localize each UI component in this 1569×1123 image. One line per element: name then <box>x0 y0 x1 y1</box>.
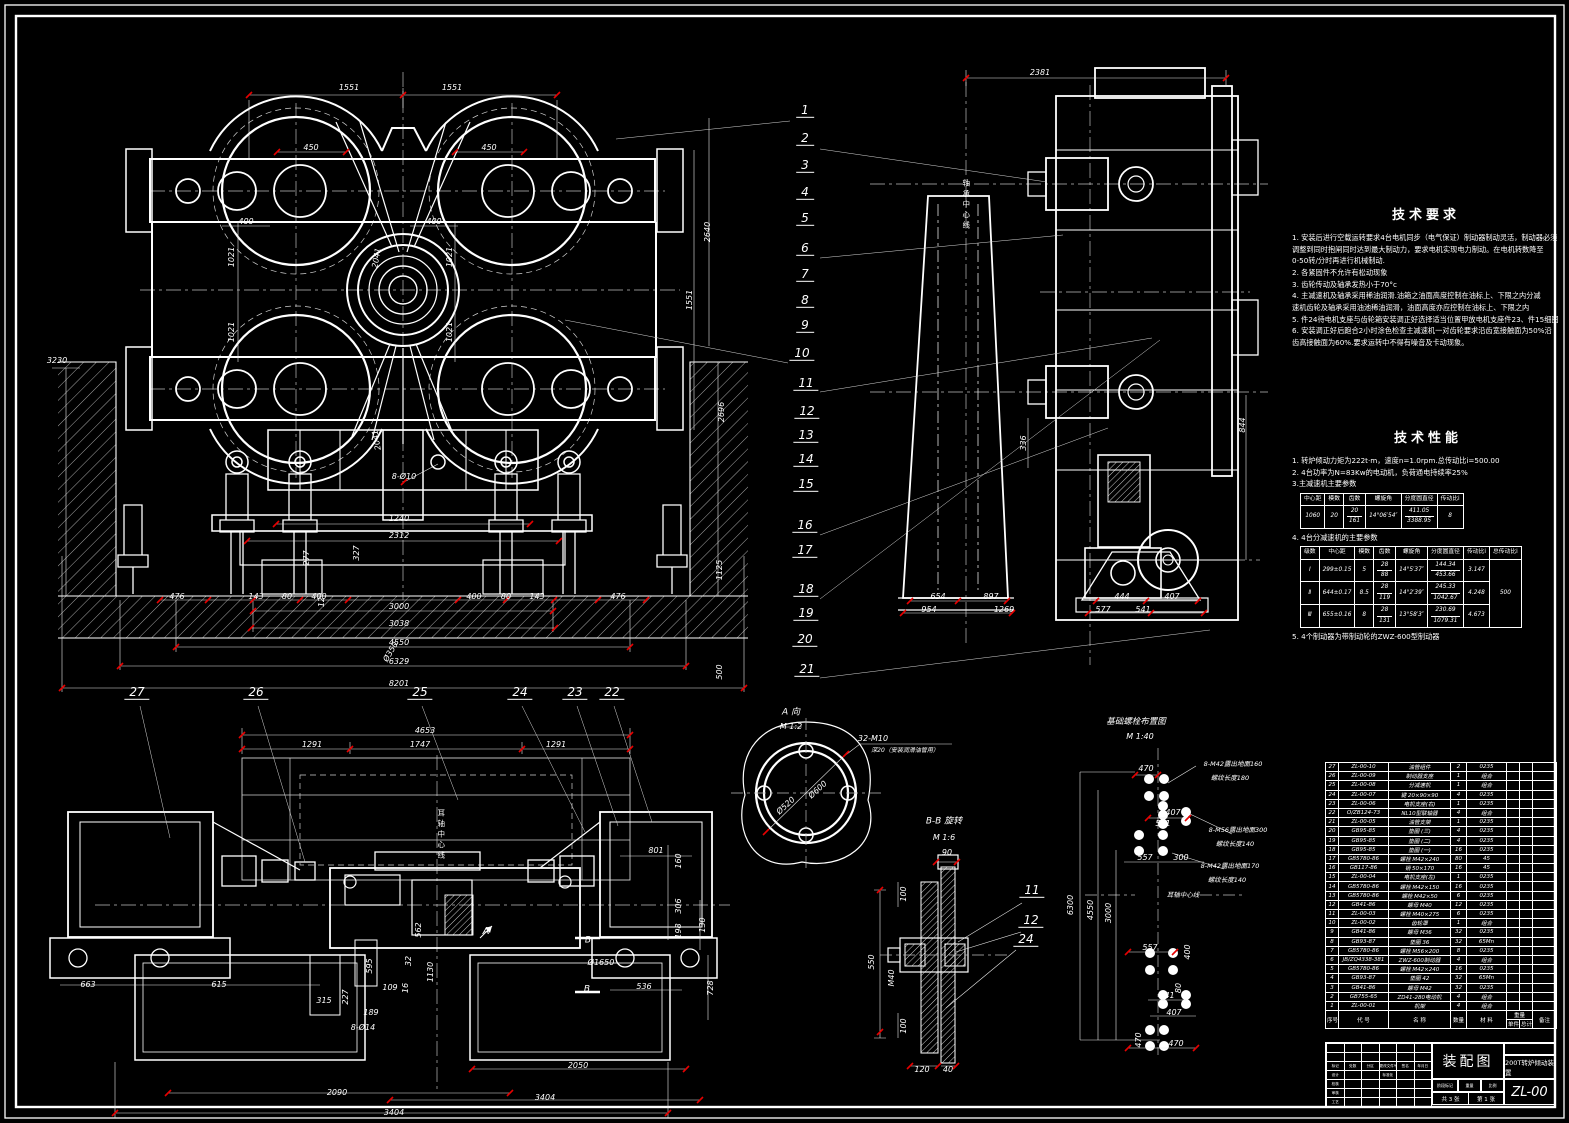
bom-row: 7GB5780-86螺栓 M56×20080235 <box>1326 946 1557 955</box>
t2-r0-center: 299±0.15 <box>1319 559 1355 582</box>
t2-r2-dia: 230.69 1079.31 <box>1427 605 1463 628</box>
rev-col-zone: 分区 <box>1362 1062 1380 1071</box>
t2-r2-teeth: 28 131 <box>1374 605 1396 628</box>
bom-header-row: 序号 代 号 名 称 数量 材 料 重量 备注 <box>1326 1011 1557 1020</box>
t2-r1-dia-bot: 1042.67 <box>1431 594 1460 603</box>
callout-main-5: 5 <box>796 212 814 226</box>
bom-row: 4GB93-87垫圈 423265Mn <box>1326 974 1557 983</box>
t2-h-ratio: 传动比i <box>1463 547 1489 559</box>
bom-row: 26ZL-00-09制动器支座1组合 <box>1326 772 1557 781</box>
t2-r1-ratio: 4.248 <box>1463 582 1489 605</box>
tech-performance: 技术性能 1. 转炉倾动力矩为222t·m，速度n=1.0rpm.总传动比i=5… <box>1292 428 1564 643</box>
t2-h-total: 总传动比i <box>1489 547 1521 559</box>
callout-plan-22: 22 <box>599 686 624 700</box>
note-line: 0-50转/分时再进行机械制动. <box>1292 255 1560 267</box>
stage-mark-label: 阶段标记 <box>1432 1079 1458 1092</box>
bom-row: 21ZL-00-05油管支架10235 <box>1326 818 1557 827</box>
callout-main-16: 16 <box>792 519 817 533</box>
callout-main-2: 2 <box>796 132 814 146</box>
callout-main-8: 8 <box>796 294 814 308</box>
tech-performance-title: 技术性能 <box>1292 428 1564 449</box>
bom-row: 1ZL-00-01机架4组合 <box>1326 1001 1557 1010</box>
bom-row: 13GB5780-86螺栓 M42×5060235 <box>1326 891 1557 900</box>
product-name: 200T转炉倾动装置 <box>1504 1055 1555 1079</box>
note-line: 3. 齿轮传动及轴承发热小于70°c <box>1292 279 1560 291</box>
bom-row: 2GB755-65ZD41-280电动机4组合 <box>1326 992 1557 1001</box>
t2-r0-teeth: 28 88 <box>1374 559 1396 582</box>
plan-view <box>50 728 730 1118</box>
t2-r0-dia-bot: 453.66 <box>1431 571 1460 580</box>
callout-main-1: 1 <box>796 104 814 118</box>
bom-row: 20GB95-85垫圈 (三)40235 <box>1326 827 1557 836</box>
t2-r1-stage: Ⅱ <box>1301 582 1320 605</box>
t1-h-center: 中心距 <box>1301 493 1325 505</box>
t2-r2-dia-top: 230.69 <box>1431 606 1460 616</box>
role-standardization: 标准化 <box>1379 1071 1397 1080</box>
t2-r2-dia-bot: 1079.31 <box>1431 617 1460 626</box>
bom-row: 5GB5780-86螺栓 M42×240160235 <box>1326 965 1557 974</box>
callout-main-7: 7 <box>796 268 814 282</box>
bom-h-weight: 重量 <box>1507 1011 1533 1020</box>
bom-h-code: 代 号 <box>1339 1011 1389 1029</box>
callout-main-20: 20 <box>792 633 817 647</box>
note-line: 5. 件24待电机支座与齿轮箱安装调正好选择适当位置甲放电机支座件23、件15细… <box>1292 314 1560 326</box>
callout-main-18: 18 <box>793 583 818 597</box>
t1-teeth: 20 161 <box>1344 505 1366 528</box>
callout-plan-23: 23 <box>562 686 587 700</box>
bb-section <box>874 855 1022 1066</box>
t1-h-dia: 分度圆直径 <box>1401 493 1437 505</box>
t1-h-teeth: 齿数 <box>1344 493 1366 505</box>
note-line: 速机齿轮及轴承采用油池稀油润滑，油面高度亦应控制在油标上、下限之内 <box>1292 302 1560 314</box>
title-block: 标记 处数 分区 更改文件号 签名 年月日 设计标准化 校核 审核 工艺 装配图… <box>1325 1042 1556 1107</box>
t2-r2-module: 8 <box>1355 605 1374 628</box>
rev-col-date: 年月日 <box>1414 1062 1432 1071</box>
sheet-count: 共 3 张 <box>1432 1092 1468 1105</box>
scale-label: 比例 <box>1481 1079 1504 1092</box>
parts-list: 27ZL-00-10油管组件2023526ZL-00-09制动器支座1组合25Z… <box>1325 762 1556 1029</box>
bom-h-qty: 数量 <box>1451 1011 1467 1029</box>
callout-bb-24: 24 <box>1013 933 1038 947</box>
bom-row: 23ZL-00-06电机支座(右)10235 <box>1326 799 1557 808</box>
t2-r0-dia-top: 144.34 <box>1431 561 1460 571</box>
t1-dia: 411.05 3388.95 <box>1401 505 1437 528</box>
t2-r0-teeth-top: 28 <box>1377 561 1392 571</box>
t1-h-angle: 螺旋角 <box>1366 493 1402 505</box>
bom-row: 8GB93-87垫圈 363265Mn <box>1326 937 1557 946</box>
bom-row: 19GB95-85垫圈 (二)40235 <box>1326 836 1557 845</box>
bom-h-total: 总计 <box>1520 1020 1533 1029</box>
callout-main-19: 19 <box>793 607 818 621</box>
t2-total-ratio: 500 <box>1489 559 1521 627</box>
t1-dia-top: 411.05 <box>1405 507 1434 517</box>
bom-row: 22O/ZB124-73NL10型联轴器4组合 <box>1326 808 1557 817</box>
callout-main-14: 14 <box>793 453 818 467</box>
t2-h-stage: 级数 <box>1301 547 1320 559</box>
callout-plan-26: 26 <box>243 686 268 700</box>
callout-main-3: 3 <box>796 159 814 173</box>
t1-teeth-bot: 161 <box>1347 517 1362 526</box>
t2-r0-ratio: 3.147 <box>1463 559 1489 582</box>
t2-r1-dia-top: 245.33 <box>1431 583 1460 593</box>
t2-r2-ratio: 4.673 <box>1463 605 1489 628</box>
bom-row: 24ZL-00-07键 20×90×9040235 <box>1326 790 1557 799</box>
t2-r1-dia: 245.33 1042.67 <box>1427 582 1463 605</box>
drawing-type-title: 装配图 <box>1432 1043 1504 1079</box>
t1-dia-bot: 3388.95 <box>1405 517 1434 526</box>
callout-main-9: 9 <box>796 319 814 333</box>
t1-h-ratio: 传动比i <box>1437 493 1463 505</box>
callout-main-10: 10 <box>789 347 814 361</box>
sheet-number: 第 1 张 <box>1468 1092 1504 1105</box>
cad-drawing-screenshot: { "sheet": { "title": "装配图", "product": … <box>0 0 1569 1123</box>
t1-ratio: 8 <box>1437 505 1463 528</box>
bom-row: 16GB117-86销 50×1701645 <box>1326 864 1557 873</box>
bom-row: 25ZL-00-08分减速机1组合 <box>1326 781 1557 790</box>
note-line: 6. 安装调正好后跑合2小时涂色检查主减速机一对齿轮要求沿齿宽接触面为50%沿 <box>1292 325 1560 337</box>
t1-angle: 14°06′54″ <box>1366 505 1402 528</box>
t1-module: 20 <box>1325 505 1344 528</box>
perf-line-1: 1. 转炉倾动力矩为222t·m，速度n=1.0rpm.总传动比i=500.00 <box>1292 455 1564 467</box>
t2-h-teeth: 齿数 <box>1374 547 1396 559</box>
callout-main-13: 13 <box>793 429 818 443</box>
t2-r1-teeth-bot: 119 <box>1377 594 1392 603</box>
t2-r2-center: 655±0.16 <box>1319 605 1355 628</box>
bom-row: 3GB41-86螺母 M42320235 <box>1326 983 1557 992</box>
drawing-code: ZL-00 <box>1504 1079 1555 1105</box>
callout-plan-24: 24 <box>507 686 532 700</box>
perf-line-4: 4. 4台分减速机的主要参数 <box>1292 532 1564 544</box>
t2-r0-module: 5 <box>1355 559 1374 582</box>
t2-r0-dia: 144.34 453.66 <box>1427 559 1463 582</box>
bom-row: 18GB95-85垫圈 (一)160235 <box>1326 845 1557 854</box>
t2-r2-stage: Ⅲ <box>1301 605 1320 628</box>
t2-h-angle: 螺旋角 <box>1396 547 1428 559</box>
t2-r1-teeth-top: 28 <box>1377 583 1392 593</box>
bom-row: 15ZL-00-04电机支座(左)10235 <box>1326 873 1557 882</box>
tech-requirements-title: 技术要求 <box>1292 205 1560 226</box>
a-view-detail <box>731 718 952 868</box>
bom-row: 9GB41-86螺母 M36320235 <box>1326 928 1557 937</box>
rev-col-count: 处数 <box>1344 1062 1362 1071</box>
bom-row: 12GB41-86螺母 M40120235 <box>1326 900 1557 909</box>
callout-bb-11: 11 <box>1019 884 1044 898</box>
t2-r1-teeth: 28 119 <box>1374 582 1396 605</box>
t2-h-center: 中心距 <box>1319 547 1355 559</box>
main-reducer-table: 中心距 模数 齿数 螺旋角 分度圆直径 传动比i 1060 20 20 161 … <box>1300 493 1464 529</box>
t2-r0-angle: 14°5′37″ <box>1396 559 1428 582</box>
perf-line-2: 2. 4台功率为N=83Kw的电动机，负荷通电持续率25% <box>1292 467 1564 479</box>
perf-line-5: 5. 4个制动器为带制动轮的ZWZ-600型制动器 <box>1292 631 1564 643</box>
perf-line-3: 3.主减速机主要参数 <box>1292 478 1564 490</box>
bom-row: 27ZL-00-10油管组件20235 <box>1326 763 1557 772</box>
t2-h-dia: 分度圆直径 <box>1427 547 1463 559</box>
note-line: 1. 安装后进行空载运转要求4台电机同步（电气保证）制动器制动灵活，制动器必须 <box>1292 232 1560 244</box>
callout-main-12: 12 <box>794 405 819 419</box>
bom-h-name: 名 称 <box>1389 1011 1451 1029</box>
bom-h-material: 材 料 <box>1467 1011 1507 1029</box>
note-line: 齿高接触面为60%.要求运转中不得有噪音及卡动现象。 <box>1292 337 1560 349</box>
t2-r1-module: 8.5 <box>1355 582 1374 605</box>
callout-main-11: 11 <box>793 377 818 391</box>
bom-h-remark: 备注 <box>1533 1011 1557 1029</box>
bom-table: 27ZL-00-10油管组件2023526ZL-00-09制动器支座1组合25Z… <box>1325 762 1557 1029</box>
callout-plan-25: 25 <box>407 686 432 700</box>
callout-plan-27: 27 <box>124 686 149 700</box>
role-process: 工艺 <box>1327 1098 1345 1107</box>
tech-requirements-lines: 1. 安装后进行空载运转要求4台电机同步（电气保证）制动器制动灵活，制动器必须 … <box>1292 232 1560 349</box>
titleblock-empty-strip <box>1504 1043 1555 1055</box>
rev-col-docno: 更改文件号 <box>1379 1062 1397 1071</box>
t1-center: 1060 <box>1301 505 1325 528</box>
sub-reducer-table: 级数 中心距 模数 齿数 螺旋角 分度圆直径 传动比i 总传动比i Ⅰ 299±… <box>1300 546 1522 628</box>
callout-main-4: 4 <box>796 186 814 200</box>
callout-main-21: 21 <box>794 663 819 677</box>
t1-h-module: 模数 <box>1325 493 1344 505</box>
bom-h-no: 序号 <box>1326 1011 1339 1029</box>
callout-main-17: 17 <box>792 544 817 558</box>
t2-r2-teeth-top: 28 <box>1377 606 1392 616</box>
t2-r0-teeth-bot: 88 <box>1377 571 1392 580</box>
t2-r2-angle: 13°58′3″ <box>1396 605 1428 628</box>
rev-col-sign: 签名 <box>1397 1062 1415 1071</box>
t1-teeth-top: 20 <box>1347 507 1362 517</box>
side-view <box>870 68 1268 665</box>
callout-bb-12: 12 <box>1018 914 1043 928</box>
callout-main-6: 6 <box>796 242 814 256</box>
rev-col-mark: 标记 <box>1327 1062 1345 1071</box>
revision-table: 标记 处数 分区 更改文件号 签名 年月日 设计标准化 校核 审核 工艺 <box>1326 1043 1432 1107</box>
t2-r0-stage: Ⅰ <box>1301 559 1320 582</box>
callout-main-15: 15 <box>793 478 818 492</box>
bom-row: 11ZL-00-03螺栓 M40×27560235 <box>1326 910 1557 919</box>
front-view <box>52 72 748 692</box>
role-design: 设计 <box>1327 1071 1345 1080</box>
bom-row: 6JB/ZQ4338-381ZWZ-600制动器4组合 <box>1326 955 1557 964</box>
weight-label: 重量 <box>1458 1079 1481 1092</box>
tech-requirements: 技术要求 1. 安装后进行空载运转要求4台电机同步（电气保证）制动器制动灵活，制… <box>1292 205 1560 349</box>
t2-r1-center: 644±0.17 <box>1319 582 1355 605</box>
revision-header-row: 标记 处数 分区 更改文件号 签名 年月日 <box>1327 1062 1432 1071</box>
note-line: 4. 主减速机及轴承采用稀油润滑.油箱之油面高度控制在油标上、下限之内分减 <box>1292 290 1560 302</box>
note-line: 调整到同时抱闸同时达到最大制动力，要求电机实现电力制动。在电机转数降至 <box>1292 244 1560 256</box>
t2-r2-teeth-bot: 131 <box>1377 617 1392 626</box>
bom-row: 14GB5780-86螺栓 M42×150160235 <box>1326 882 1557 891</box>
role-review: 审核 <box>1327 1089 1345 1098</box>
foundation-layout <box>1080 748 1245 1055</box>
t2-r1-angle: 14°2′39″ <box>1396 582 1428 605</box>
bom-row: 17GB5780-86螺栓 M42×2408045 <box>1326 854 1557 863</box>
t2-h-module: 模数 <box>1355 547 1374 559</box>
role-check: 校核 <box>1327 1080 1345 1089</box>
bom-row: 10ZL-00-02齿轮罩1组合 <box>1326 919 1557 928</box>
note-line: 2. 各紧固件不允许有松动现象 <box>1292 267 1560 279</box>
bom-h-unit: 单件 <box>1507 1020 1520 1029</box>
